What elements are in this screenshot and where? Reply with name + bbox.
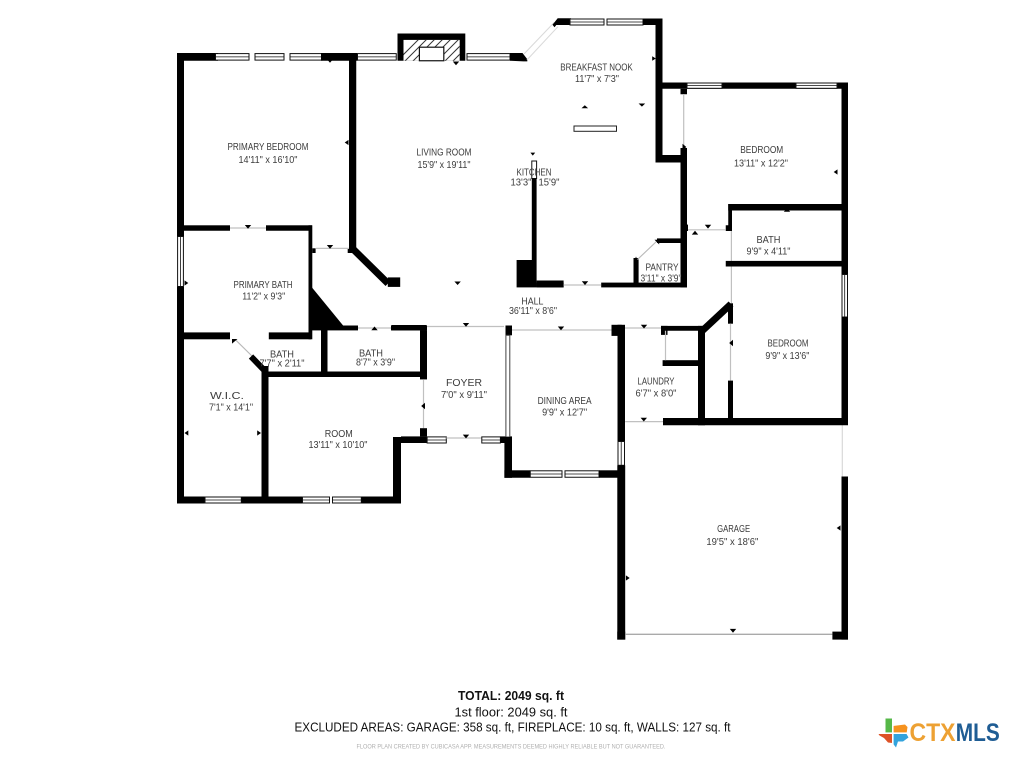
svg-text:6'7" x 8'0": 6'7" x 8'0" — [636, 388, 677, 400]
svg-text:GARAGE: GARAGE — [717, 523, 750, 535]
svg-text:8'7" x 3'9": 8'7" x 3'9" — [356, 357, 395, 369]
svg-text:9'9" x 13'6": 9'9" x 13'6" — [765, 350, 809, 362]
svg-text:15'9" x 19'11": 15'9" x 19'11" — [418, 159, 471, 171]
svg-text:13'3": 13'3" — [511, 177, 532, 189]
svg-text:36'11" x 8'6": 36'11" x 8'6" — [509, 305, 557, 317]
svg-text:7'1" x 14'1": 7'1" x 14'1" — [209, 402, 253, 414]
svg-text:LAUNDRY: LAUNDRY — [638, 376, 675, 388]
svg-text:FOYER: FOYER — [446, 377, 482, 389]
svg-text:7'0" x 9'11": 7'0" x 9'11" — [441, 389, 487, 401]
svg-text:FLOOR PLAN CREATED BY CUBICASA: FLOOR PLAN CREATED BY CUBICASA APP. MEAS… — [357, 744, 666, 751]
svg-text:9'9" x 4'11": 9'9" x 4'11" — [747, 246, 791, 258]
svg-text:TOTAL: 2049 sq. ft: TOTAL: 2049 sq. ft — [458, 688, 565, 703]
svg-text:MLS: MLS — [956, 719, 1000, 747]
svg-text:W.I.C.: W.I.C. — [210, 390, 244, 402]
svg-text:14'11" x 16'10": 14'11" x 16'10" — [239, 154, 298, 166]
svg-text:PRIMARY BATH: PRIMARY BATH — [234, 279, 293, 291]
svg-text:PRIMARY BEDROOM: PRIMARY BEDROOM — [228, 141, 309, 153]
svg-text:BEDROOM: BEDROOM — [740, 144, 783, 156]
svg-text:LIVING ROOM: LIVING ROOM — [417, 147, 472, 159]
svg-text:13'11" x 10'10": 13'11" x 10'10" — [309, 439, 368, 451]
svg-text:DINING AREA: DINING AREA — [538, 395, 592, 407]
svg-text:9'9" x 12'7": 9'9" x 12'7" — [542, 407, 587, 419]
svg-text:11'2" x 9'3": 11'2" x 9'3" — [242, 291, 285, 303]
svg-text:15'9": 15'9" — [539, 177, 560, 189]
svg-text:1st floor: 2049 sq. ft: 1st floor: 2049 sq. ft — [455, 706, 569, 720]
svg-text:BREAKFAST NOOK: BREAKFAST NOOK — [560, 62, 633, 74]
svg-text:13'11" x 12'2": 13'11" x 12'2" — [734, 158, 788, 170]
svg-text:19'5" x 18'6": 19'5" x 18'6" — [706, 536, 758, 548]
svg-text:BATH: BATH — [757, 234, 781, 246]
svg-text:EXCLUDED AREAS: GARAGE: 358 sq: EXCLUDED AREAS: GARAGE: 358 sq. ft, FIRE… — [295, 721, 731, 735]
svg-text:BEDROOM: BEDROOM — [768, 338, 809, 350]
svg-text:CTX: CTX — [910, 719, 956, 747]
svg-text:11'7" x 7'3": 11'7" x 7'3" — [575, 73, 619, 85]
